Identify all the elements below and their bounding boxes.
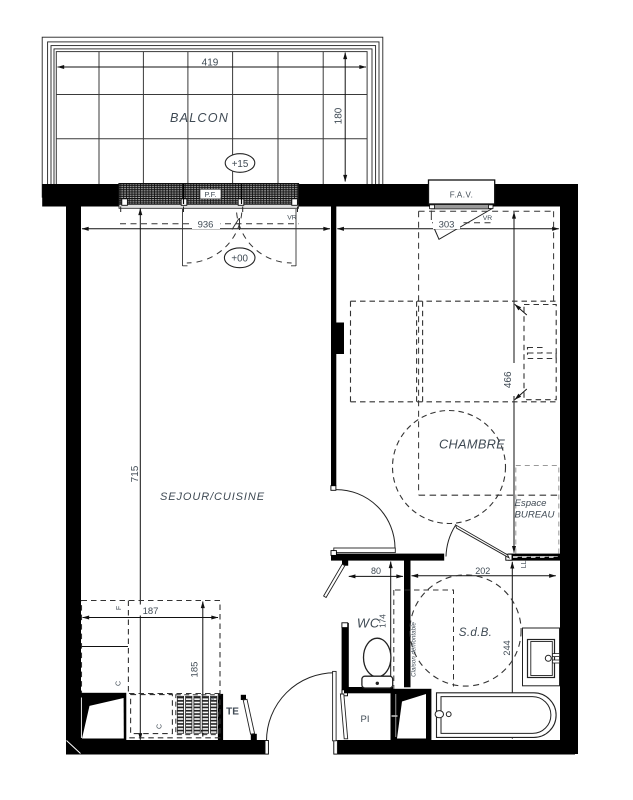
svg-text:CHAMBRE: CHAMBRE — [439, 437, 505, 452]
svg-text:244: 244 — [502, 640, 512, 655]
svg-text:TE: TE — [226, 707, 239, 718]
svg-text:202: 202 — [475, 566, 490, 576]
svg-text:PI: PI — [361, 714, 370, 725]
svg-text:VR: VR — [483, 215, 493, 222]
svg-text:SEJOUR/CUISINE: SEJOUR/CUISINE — [160, 491, 265, 503]
svg-text:F.A.V.: F.A.V. — [450, 190, 474, 199]
svg-text:185: 185 — [189, 662, 200, 678]
svg-text:303: 303 — [439, 220, 455, 231]
svg-text:F: F — [116, 606, 123, 610]
svg-text:187: 187 — [143, 606, 159, 617]
svg-text:M: M — [210, 697, 215, 703]
svg-text:419: 419 — [202, 57, 219, 68]
svg-text:VR: VR — [287, 215, 297, 222]
svg-text:P.F.: P.F. — [205, 190, 217, 199]
svg-text:936: 936 — [198, 220, 214, 231]
svg-text:+15: +15 — [232, 159, 249, 170]
svg-text:WC: WC — [357, 615, 380, 630]
svg-text:715: 715 — [130, 465, 141, 482]
svg-text:Claison démontable: Claison démontable — [411, 622, 418, 677]
svg-text:80: 80 — [371, 566, 381, 576]
svg-text:466: 466 — [503, 371, 514, 388]
svg-text:LL: LL — [521, 560, 528, 568]
svg-text:S.d.B.: S.d.B. — [459, 626, 492, 639]
svg-text:C: C — [157, 724, 164, 729]
svg-text:+00: +00 — [231, 254, 248, 265]
svg-text:C: C — [116, 681, 123, 686]
svg-text:BUREAU: BUREAU — [515, 509, 555, 520]
svg-text:BALCON: BALCON — [170, 111, 229, 125]
svg-text:180: 180 — [334, 107, 345, 124]
svg-text:Espace: Espace — [515, 498, 547, 509]
